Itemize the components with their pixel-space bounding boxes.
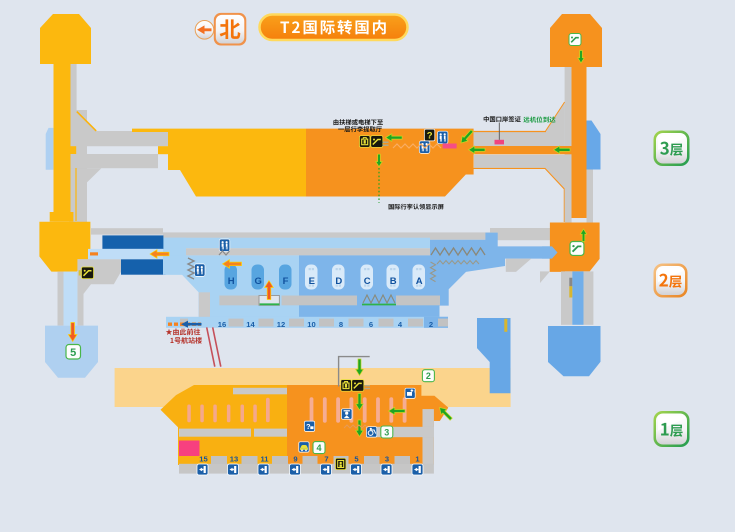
svg-text:14: 14 xyxy=(246,320,255,329)
svg-text:13: 13 xyxy=(230,454,238,463)
svg-text:2: 2 xyxy=(429,320,433,329)
svg-text:?: ? xyxy=(427,131,433,142)
svg-text:8: 8 xyxy=(339,320,343,329)
svg-text:E: E xyxy=(309,276,315,287)
svg-text:3: 3 xyxy=(384,427,389,437)
svg-text:6: 6 xyxy=(369,320,373,329)
svg-text:A: A xyxy=(416,276,423,287)
svg-text:10: 10 xyxy=(307,320,315,329)
svg-text:B: B xyxy=(390,276,397,287)
svg-text:F: F xyxy=(283,276,289,287)
svg-text:H: H xyxy=(228,276,235,287)
svg-text:?: ? xyxy=(306,422,311,431)
svg-text:5: 5 xyxy=(70,347,76,359)
svg-text:15: 15 xyxy=(199,454,208,463)
svg-text:11: 11 xyxy=(260,454,269,463)
svg-text:9: 9 xyxy=(293,454,297,463)
svg-text:C: C xyxy=(364,276,371,287)
svg-text:16: 16 xyxy=(218,320,226,329)
svg-text:7: 7 xyxy=(324,454,328,463)
svg-text:G: G xyxy=(255,276,262,287)
svg-text:3: 3 xyxy=(385,454,389,463)
svg-text:4: 4 xyxy=(316,443,321,453)
svg-text:2: 2 xyxy=(426,371,431,381)
svg-text:12: 12 xyxy=(277,320,285,329)
svg-text:D: D xyxy=(335,276,342,287)
